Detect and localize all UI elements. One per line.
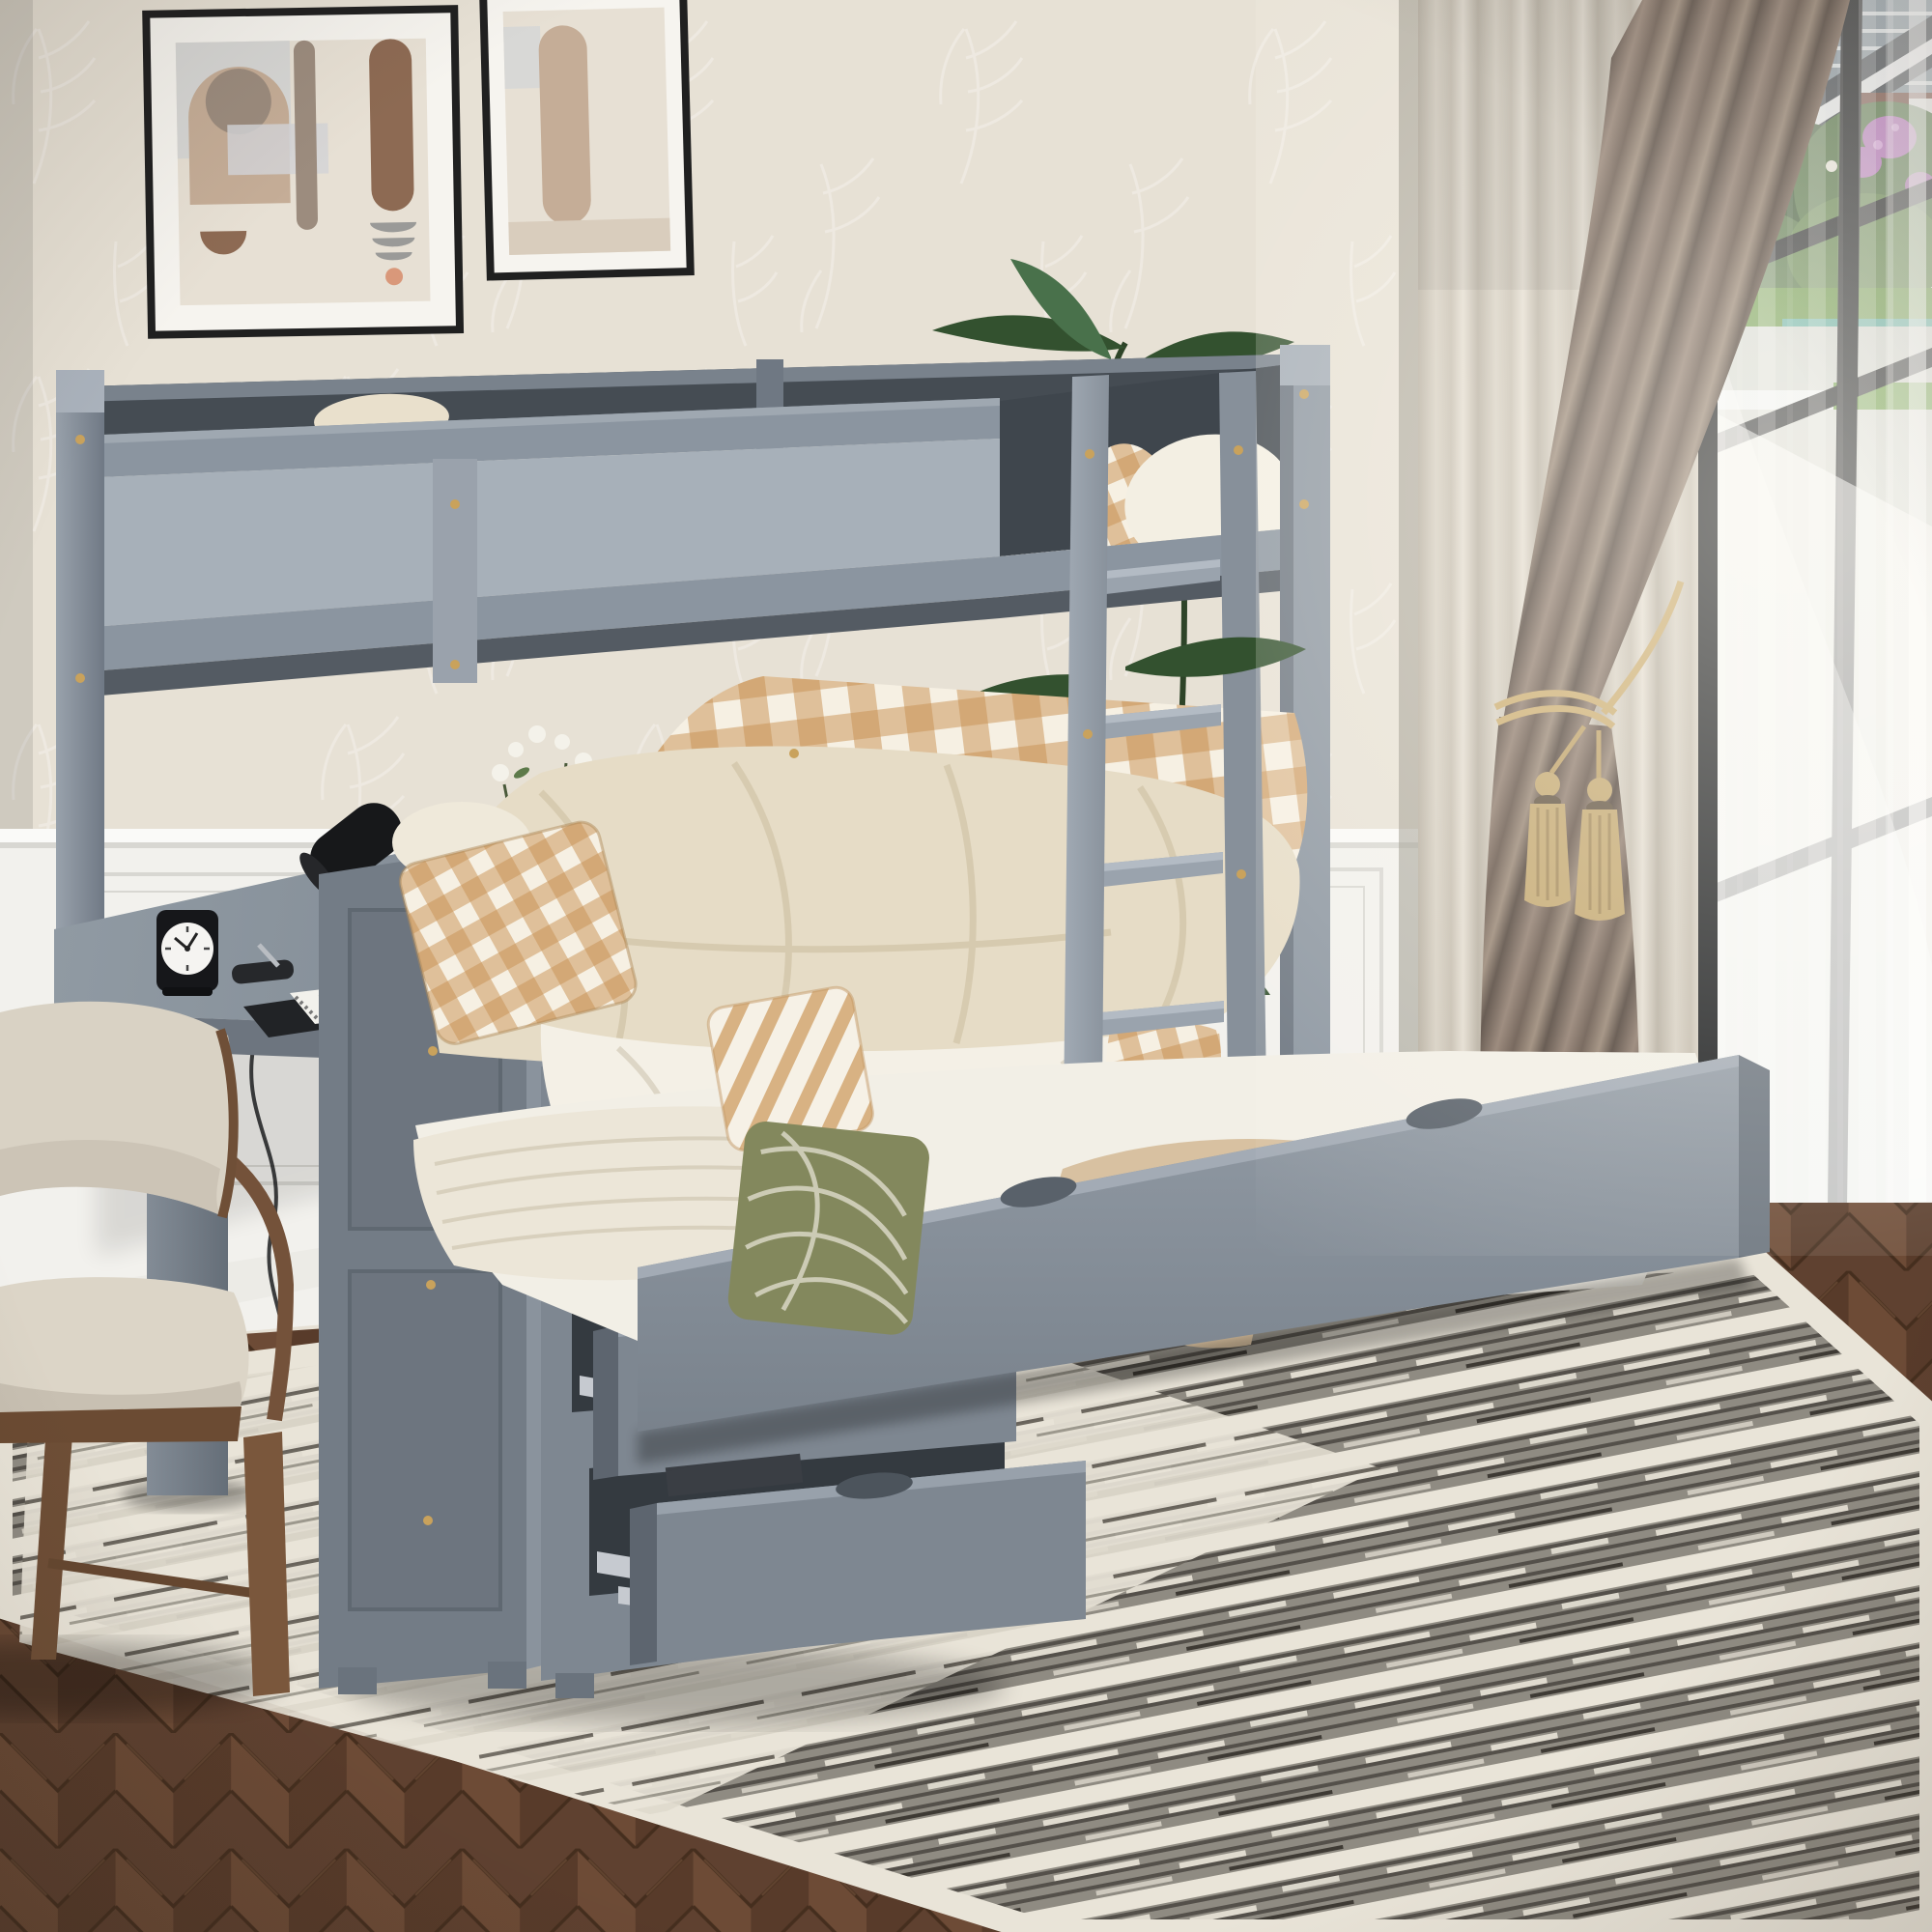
vignette <box>0 0 1932 1932</box>
bedroom-scene <box>0 0 1932 1932</box>
bedroom-photo <box>0 0 1932 1932</box>
